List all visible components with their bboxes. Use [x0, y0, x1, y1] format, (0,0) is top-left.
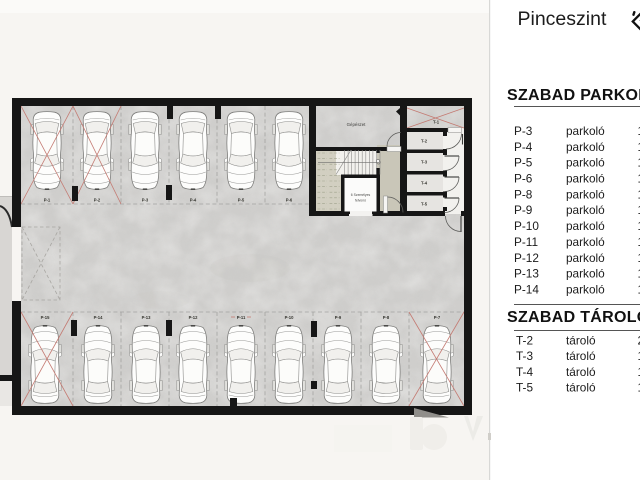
- svg-text:P-3: P-3: [514, 124, 533, 138]
- svg-text:parkoló: parkoló: [566, 140, 605, 154]
- svg-text:parkoló: parkoló: [566, 172, 605, 186]
- svg-text:P-13: P-13: [142, 315, 152, 320]
- svg-text:P-6: P-6: [514, 172, 533, 186]
- svg-text:T-4: T-4: [516, 365, 533, 379]
- svg-text:parkoló: parkoló: [566, 187, 605, 201]
- svg-text:T-5: T-5: [421, 202, 428, 207]
- svg-text:P-11: P-11: [514, 235, 538, 249]
- svg-text:P-14: P-14: [514, 283, 539, 297]
- svg-text:T-5: T-5: [516, 381, 533, 395]
- svg-text:parkoló: parkoló: [566, 235, 605, 249]
- svg-text:tároló: tároló: [566, 365, 596, 379]
- svg-text:parkoló: parkoló: [566, 267, 605, 281]
- svg-text:P-15: P-15: [41, 315, 51, 320]
- svg-text:P-10: P-10: [285, 315, 295, 320]
- svg-text:P-10: P-10: [514, 219, 539, 233]
- svg-text:tároló: tároló: [566, 349, 596, 363]
- svg-text:T-1: T-1: [433, 120, 440, 125]
- svg-text:parkoló: parkoló: [566, 251, 605, 265]
- svg-text:parkoló: parkoló: [566, 203, 605, 217]
- svg-text:felvonó: felvonó: [355, 199, 366, 203]
- svg-text:P-14: P-14: [94, 315, 104, 320]
- svg-text:P-1: P-1: [44, 198, 51, 203]
- svg-text:SZABAD TÁROLÓK: SZABAD TÁROLÓK: [507, 307, 640, 326]
- svg-text:P-9: P-9: [514, 203, 532, 217]
- svg-text:P-2: P-2: [94, 198, 101, 203]
- svg-text:T-2: T-2: [421, 139, 428, 144]
- svg-text:T-4: T-4: [421, 181, 428, 186]
- svg-text:P-13: P-13: [514, 267, 539, 281]
- svg-text:P-6: P-6: [286, 198, 293, 203]
- svg-text:Pinceszint: Pinceszint: [518, 8, 607, 30]
- svg-text:P-12: P-12: [189, 315, 199, 320]
- svg-text:parkoló: parkoló: [566, 124, 605, 138]
- svg-text:P-3: P-3: [142, 198, 149, 203]
- svg-text:P-9: P-9: [335, 315, 342, 320]
- svg-text:T-3: T-3: [516, 349, 533, 363]
- svg-text:P-11: P-11: [237, 315, 246, 320]
- svg-text:T-2: T-2: [516, 334, 533, 348]
- svg-text:6 Személyes: 6 Személyes: [351, 193, 371, 197]
- svg-text:P-12: P-12: [514, 251, 539, 265]
- svg-text:P-8: P-8: [514, 187, 533, 201]
- svg-text:parkoló: parkoló: [566, 156, 605, 170]
- svg-text:P-4: P-4: [514, 140, 533, 154]
- svg-text:tároló: tároló: [566, 334, 596, 348]
- svg-text:tároló: tároló: [566, 381, 596, 395]
- svg-text:P-4: P-4: [190, 198, 197, 203]
- svg-text:SZABAD PARKOLÓK: SZABAD PARKOLÓK: [507, 85, 640, 104]
- svg-text:parkoló: parkoló: [566, 283, 605, 297]
- svg-text:P-8: P-8: [383, 315, 390, 320]
- svg-text:Gépészet: Gépészet: [347, 122, 367, 127]
- svg-text:T-3: T-3: [421, 160, 428, 165]
- svg-text:parkoló: parkoló: [566, 219, 605, 233]
- svg-text:P-7: P-7: [434, 315, 441, 320]
- svg-text:P-5: P-5: [514, 156, 533, 170]
- svg-text:P-5: P-5: [238, 198, 245, 203]
